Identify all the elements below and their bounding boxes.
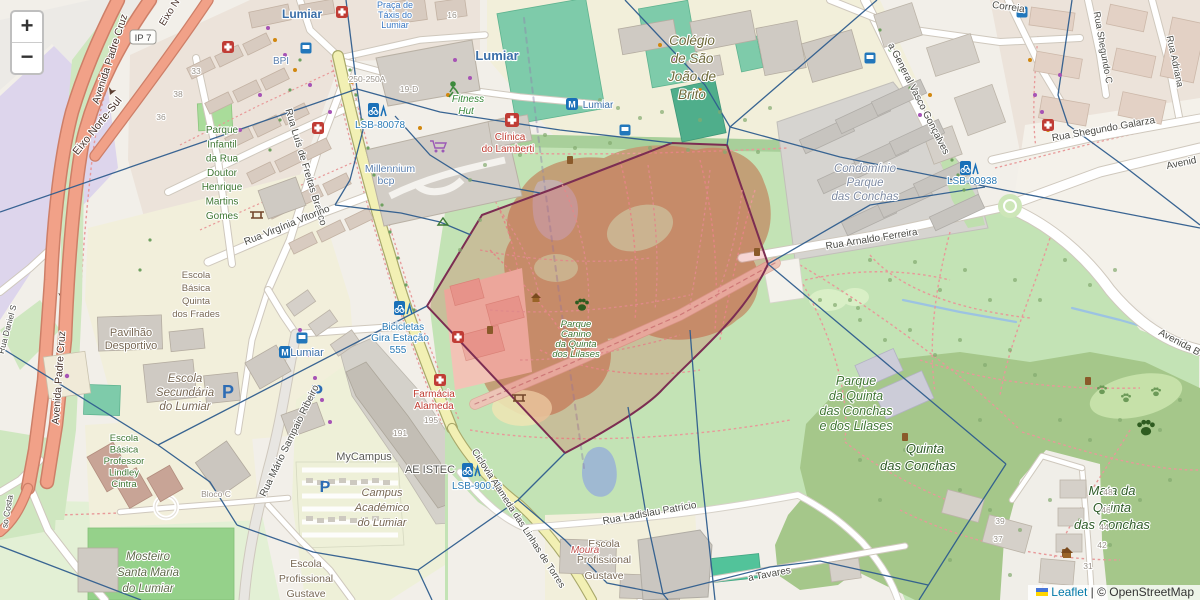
svg-text:M: M <box>568 100 576 110</box>
svg-text:Millennium: Millennium <box>365 163 415 175</box>
svg-text:das Conchas: das Conchas <box>820 404 893 418</box>
svg-text:Cintra: Cintra <box>111 479 137 490</box>
svg-text:das Conchas: das Conchas <box>880 458 956 473</box>
svg-text:Parque: Parque <box>836 374 876 388</box>
svg-text:Gustave: Gustave <box>286 588 325 600</box>
svg-text:Doutor: Doutor <box>207 168 238 179</box>
svg-text:do Lumiar: do Lumiar <box>122 583 174 595</box>
svg-text:Académico: Académico <box>354 502 409 514</box>
svg-text:Gustave: Gustave <box>584 570 623 582</box>
svg-text:das Conchas: das Conchas <box>831 191 898 203</box>
svg-text:Santa Maria: Santa Maria <box>117 567 179 579</box>
svg-text:Hut: Hut <box>458 106 475 117</box>
svg-text:Brito: Brito <box>678 87 706 102</box>
svg-text:Henrique: Henrique <box>202 182 243 193</box>
svg-text:19-D: 19-D <box>400 84 418 94</box>
svg-text:Lindley: Lindley <box>109 468 139 479</box>
svg-text:48: 48 <box>1103 487 1113 497</box>
svg-text:de São: de São <box>671 51 714 66</box>
svg-text:Gomes: Gomes <box>206 211 238 222</box>
svg-text:P: P <box>222 382 234 402</box>
svg-text:bcp: bcp <box>378 175 395 187</box>
svg-text:Quinta: Quinta <box>182 296 211 307</box>
svg-text:Mosteiro: Mosteiro <box>126 551 171 563</box>
svg-text:16: 16 <box>447 10 457 20</box>
svg-text:Clínica: Clínica <box>495 132 526 143</box>
svg-text:Praça de: Praça de <box>377 0 413 10</box>
svg-text:LSB-00938: LSB-00938 <box>947 176 997 187</box>
svg-text:das Conchas: das Conchas <box>1074 517 1150 532</box>
svg-text:Condomínio: Condomínio <box>834 163 897 175</box>
svg-text:195: 195 <box>424 415 438 425</box>
svg-text:da Quinta: da Quinta <box>829 389 883 403</box>
svg-text:M: M <box>281 348 289 358</box>
svg-text:Pavilhão: Pavilhão <box>110 327 152 339</box>
svg-text:Fitness: Fitness <box>452 94 484 105</box>
svg-text:Colégio: Colégio <box>669 33 715 48</box>
svg-text:Moura: Moura <box>571 545 600 556</box>
svg-text:Quinta: Quinta <box>906 441 944 456</box>
svg-text:191: 191 <box>393 428 407 438</box>
svg-text:Táxis do: Táxis do <box>378 10 412 20</box>
svg-text:42: 42 <box>1097 540 1107 550</box>
svg-text:Básica: Básica <box>182 283 211 294</box>
svg-text:do Lamberti: do Lamberti <box>482 144 535 155</box>
svg-text:Farmácia: Farmácia <box>413 389 455 400</box>
svg-text:Lumiar: Lumiar <box>290 347 324 359</box>
svg-text:BPI: BPI <box>273 56 289 67</box>
svg-text:44: 44 <box>1099 522 1109 532</box>
svg-text:Campus: Campus <box>362 487 403 499</box>
svg-text:Professor: Professor <box>104 456 145 467</box>
svg-text:Secundária: Secundária <box>156 387 214 399</box>
svg-text:33: 33 <box>191 66 201 76</box>
svg-text:LSB-80078: LSB-80078 <box>355 120 405 131</box>
svg-text:IP 7: IP 7 <box>135 33 152 44</box>
svg-text:Lumiar: Lumiar <box>475 48 518 63</box>
svg-text:Básica: Básica <box>110 445 139 456</box>
svg-text:37: 37 <box>993 534 1003 544</box>
svg-text:36: 36 <box>156 112 166 122</box>
svg-text:Lumiar: Lumiar <box>282 7 322 21</box>
svg-text:Lumiar: Lumiar <box>381 20 409 30</box>
svg-text:AE ISTEC: AE ISTEC <box>405 464 455 476</box>
svg-text:Profissional: Profissional <box>279 573 333 585</box>
svg-text:Bloco C: Bloco C <box>201 489 231 499</box>
svg-text:555: 555 <box>390 345 407 356</box>
svg-text:38: 38 <box>173 89 183 99</box>
svg-text:do Lumiar: do Lumiar <box>159 401 211 413</box>
svg-text:dos Frades: dos Frades <box>172 309 220 320</box>
svg-text:do Lumiar: do Lumiar <box>358 517 408 529</box>
svg-text:MyCampus: MyCampus <box>336 451 392 463</box>
svg-text:João de: João de <box>667 69 716 84</box>
svg-text:Escola: Escola <box>168 373 203 385</box>
svg-text:46: 46 <box>1101 505 1111 515</box>
svg-text:39: 39 <box>995 516 1005 526</box>
svg-text:250-250A: 250-250A <box>349 74 386 84</box>
svg-text:Bicicletas: Bicicletas <box>382 322 424 333</box>
svg-text:Parque: Parque <box>206 125 239 136</box>
svg-text:Desportivo: Desportivo <box>105 340 158 352</box>
svg-text:P: P <box>320 479 331 496</box>
svg-text:e dos Lilases: e dos Lilases <box>820 419 893 433</box>
svg-text:31: 31 <box>1083 561 1093 571</box>
svg-text:Parque: Parque <box>846 177 883 189</box>
svg-text:Quinta: Quinta <box>1093 500 1131 515</box>
svg-text:dos Lilases: dos Lilases <box>552 349 600 360</box>
svg-text:da Rua: da Rua <box>206 154 239 165</box>
svg-text:Alameda: Alameda <box>414 401 454 412</box>
svg-text:Martins: Martins <box>206 197 239 208</box>
svg-text:Escola: Escola <box>290 558 322 570</box>
svg-text:Infantil: Infantil <box>207 139 236 150</box>
svg-text:Gira Estação: Gira Estação <box>371 333 429 344</box>
svg-text:Lumiar: Lumiar <box>583 100 614 111</box>
svg-text:Escola: Escola <box>182 270 211 281</box>
svg-text:Escola: Escola <box>110 433 139 444</box>
